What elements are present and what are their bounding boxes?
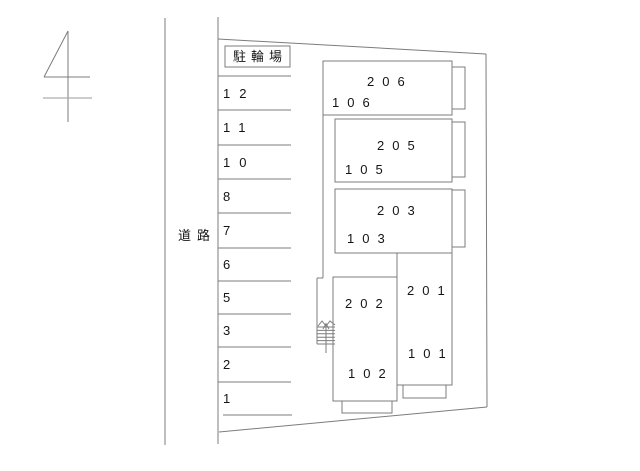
unit-label-105: 105 [345,162,391,177]
parking-space-label: 7 [223,223,239,238]
site-bottom-boundary [219,407,487,432]
parking-space-label: 11 [223,120,255,135]
parking-space-label: 5 [223,290,239,305]
entrance-porch [403,385,446,398]
unit-label-106: 106 [332,95,378,110]
parking-stall-labels: 12 11 10 8 7 6 5 3 2 1 [223,86,255,406]
bicycle-parking: 駐輪場 [225,46,290,67]
unit-label-206: 206 [367,74,413,89]
balcony [452,67,465,109]
unit-label-102: 102 [348,366,394,381]
unit-label-202: 202 [345,296,391,311]
parking-space-label: 8 [223,189,239,204]
bicycle-parking-label: 駐輪場 [233,49,287,64]
unit-label-201: 201 [407,283,453,298]
unit-label-205: 205 [377,138,423,153]
balcony [452,190,465,247]
balcony [452,122,465,177]
site-plan-canvas: 道路 駐輪場 12 11 10 8 7 6 5 3 2 1 [0,0,640,471]
building-north: 206 106 205 105 203 103 [317,61,465,344]
unit-label-203: 203 [377,203,423,218]
parking-space-label: 2 [223,357,239,372]
unit-label-101: 101 [408,346,454,361]
parking-space-label: 10 [223,155,255,170]
stairs-icon [317,321,335,353]
unit-201-outline [397,253,452,385]
parking-space-label: 6 [223,257,239,272]
parking-space-label: 3 [223,323,239,338]
building-south: 202 102 201 101 [333,253,454,413]
road-label: 道路 [178,228,216,243]
north-arrow-icon [43,31,92,122]
parking-space-label: 12 [223,86,255,101]
entrance-porch [342,401,392,413]
parking-space-label: 1 [223,391,239,406]
site-right-boundary [486,54,487,407]
unit-label-103: 103 [347,231,393,246]
